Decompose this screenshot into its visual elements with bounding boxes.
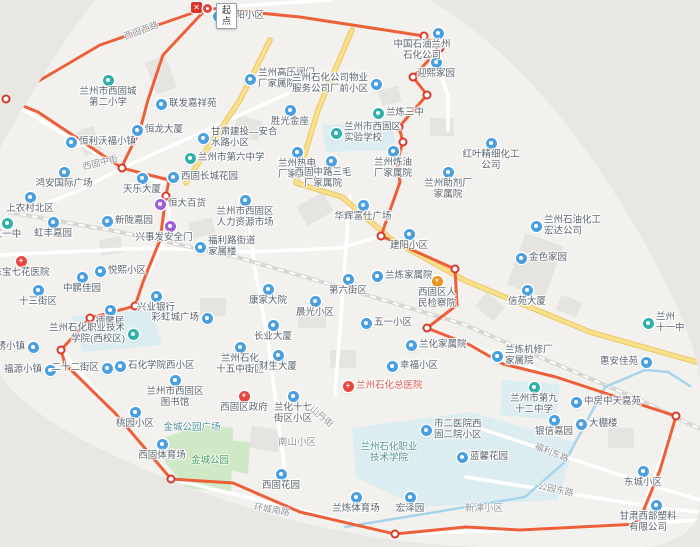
dot-icon: [361, 203, 365, 207]
dot-icon: [279, 472, 283, 476]
poi-label: 兰州石化公司物业服务公司厂前小区: [292, 74, 368, 95]
dot-icon: [354, 495, 358, 499]
poi-marker[interactable]: [105, 305, 116, 316]
poi-marker[interactable]: [388, 146, 399, 157]
poi-marker[interactable]: [292, 147, 303, 158]
poi-label: 大棚楼: [589, 419, 618, 430]
dot-icon: [108, 308, 112, 312]
dot-icon: [238, 345, 242, 349]
poi-label: 十三街区: [19, 297, 57, 308]
poi-label: 兰州市西固区图书馆: [146, 387, 203, 408]
poi-label: 甘肃西部塑料有限公司: [619, 512, 676, 533]
dot-icon: [188, 156, 192, 160]
dot-icon: [489, 141, 493, 145]
poi-label: 长业大厦: [254, 332, 292, 343]
dot-icon: [644, 360, 648, 364]
poi-label: 第六街区: [329, 286, 367, 297]
poi-label: 天乐大厦: [123, 185, 161, 196]
poi-marker[interactable]: [531, 221, 542, 232]
hospital-marker[interactable]: +: [16, 256, 27, 267]
area-label: 金城公园广场: [163, 423, 220, 434]
poi-marker[interactable]: [25, 192, 36, 203]
dot-icon: [243, 198, 247, 202]
poi-label: 虹丰嘉园: [34, 229, 72, 240]
dot-icon: [288, 108, 292, 112]
procuratorate-marker[interactable]: ★: [432, 276, 443, 287]
dot-icon: [28, 195, 32, 199]
poi-label: 兰州助剂厂家属院: [424, 179, 472, 200]
poi-label: 西固中路三毛厂家属院: [294, 168, 351, 189]
dot-icon: [158, 202, 162, 206]
poi-marker[interactable]: [326, 156, 337, 167]
poi-marker[interactable]: [351, 492, 362, 503]
poi-marker[interactable]: [95, 266, 106, 277]
road-name-label: 西固西路: [122, 18, 160, 43]
dot-icon: [131, 332, 135, 336]
school-marker[interactable]: [103, 75, 114, 86]
dot-icon: [198, 245, 202, 249]
area-label: 南山小区: [278, 438, 316, 449]
start-x-icon: ✕: [191, 2, 202, 13]
poi-label: 中国石油兰州石化公司: [393, 40, 450, 61]
poi-label: 惠安佳苑: [600, 357, 638, 368]
dot-icon: [69, 140, 73, 144]
shopping-marker[interactable]: [155, 199, 166, 210]
dot-icon: [460, 455, 464, 459]
poi-marker[interactable]: [235, 342, 246, 353]
dot-icon: [534, 224, 538, 228]
dot-icon: [5, 221, 9, 225]
poi-marker[interactable]: [387, 361, 398, 372]
poi-marker[interactable]: [276, 469, 287, 480]
dot-icon: [579, 422, 583, 426]
dot-icon: [276, 353, 280, 357]
poi-marker[interactable]: [48, 217, 59, 228]
poi-label: 福源小镇: [4, 365, 42, 376]
star-icon: ★: [241, 392, 246, 400]
school-marker[interactable]: [185, 153, 196, 164]
poi-label: 兴事发安全门: [135, 233, 192, 244]
poi-marker[interactable]: [33, 285, 44, 296]
poi-marker[interactable]: [638, 466, 649, 477]
poi-label: 中鹏佳园: [63, 284, 101, 295]
dot-icon: [295, 150, 299, 154]
dot-icon: [436, 31, 440, 35]
school-marker[interactable]: [2, 218, 13, 229]
poi-label: 兰州市西固区实验学校: [344, 123, 401, 144]
poi-label: 二十二街区: [51, 363, 99, 374]
dot-icon: [271, 323, 275, 327]
dot-icon: [391, 149, 395, 153]
dot-icon: [532, 385, 536, 389]
road-name-label: 山丹街: [307, 402, 336, 429]
poi-marker[interactable]: [457, 452, 468, 463]
poi-marker[interactable]: [405, 492, 416, 503]
poi-label: 恒大百货: [168, 199, 206, 210]
poi-label: 兰州市第九十二中学: [510, 394, 558, 415]
poi-marker[interactable]: [492, 351, 503, 362]
poi-label: 新陇嘉园: [115, 216, 153, 227]
poi-label: 兰州石化十五中街区: [216, 354, 264, 375]
poi-marker[interactable]: [651, 500, 662, 511]
poi-label: 兰化十七街区小区: [274, 403, 312, 424]
dot-icon: [168, 224, 172, 228]
poi-label: 兰州石化总医院: [356, 381, 423, 392]
poi-label: 晨光小区: [296, 308, 334, 319]
dot-icon: [329, 159, 333, 163]
poi-label: 兰州石油化工宏达公司: [544, 216, 601, 237]
poi-label: 西固长城花园: [181, 172, 238, 183]
poi-marker[interactable]: [202, 313, 213, 324]
dot-icon: [346, 277, 350, 281]
poi-marker[interactable]: [486, 138, 497, 149]
poi-label: 西固区人民检察院: [418, 288, 456, 309]
dot-icon: [424, 428, 428, 432]
poi-marker[interactable]: [285, 105, 296, 116]
dot-icon: [105, 366, 109, 370]
poi-marker[interactable]: [156, 99, 167, 110]
poi-label: 兰州石化职业技术学院(西校区): [49, 324, 125, 345]
road-name-label: 环城南路: [253, 499, 291, 518]
school-marker[interactable]: [331, 128, 342, 139]
poi-label: 恒利沃福小镇: [79, 137, 136, 148]
dot-icon: [390, 364, 394, 368]
poi-label: 恒龙大厦: [145, 125, 183, 136]
dot-icon: [376, 111, 380, 115]
school-marker[interactable]: [373, 108, 384, 119]
start-pin-icon: [203, 4, 212, 13]
poi-label: 兰炼体育场: [332, 504, 380, 515]
poi-label: 福利路街道家属楼: [208, 237, 256, 258]
dot-icon: [80, 275, 84, 279]
dot-icon: [375, 274, 379, 278]
dot-icon: [641, 469, 645, 473]
poi-label: 中房中天嘉苑: [584, 397, 641, 408]
road-name-label: 公园东路: [537, 479, 575, 499]
poi-label: 西固区政府: [220, 403, 268, 414]
dot-icon: [51, 220, 55, 224]
dot-icon: [135, 128, 139, 132]
poi-marker[interactable]: [371, 79, 382, 90]
dot-icon: [248, 77, 252, 81]
dot-icon: [364, 321, 368, 325]
school-marker[interactable]: [529, 382, 540, 393]
poi-label: 兰化家属院: [419, 340, 467, 351]
poi-label: 联发嘉祥苑: [169, 99, 217, 110]
dot-icon: [140, 176, 144, 180]
poi-label: 蓝馨花园: [470, 452, 508, 463]
dot-icon: [133, 410, 137, 414]
poi-marker[interactable]: [102, 363, 113, 374]
poi-label: 鸿安国际广场: [35, 179, 92, 190]
poi-marker[interactable]: [358, 200, 369, 211]
poi-label: 兰州炼油厂家属院: [374, 158, 412, 179]
poi-label: 康家大院: [249, 296, 287, 307]
poi-marker[interactable]: [361, 318, 372, 329]
hospital-marker[interactable]: +: [343, 381, 354, 392]
start-point-label[interactable]: 起点: [216, 3, 237, 29]
dot-icon: [98, 269, 102, 273]
dot-icon: [574, 400, 578, 404]
area-label: 新津小区: [465, 504, 503, 515]
poi-marker[interactable]: [343, 274, 354, 285]
poi-marker[interactable]: [130, 407, 141, 418]
poi-label: 市二医院西固二院小区: [434, 420, 482, 441]
poi-marker[interactable]: [132, 125, 143, 136]
poi-label: 金色家园: [529, 253, 567, 264]
poi-label: 甘肃建投—安合水路小区: [211, 128, 278, 149]
poi-label: 兰州十一中: [656, 313, 685, 334]
poi-label: 红叶精细化工公司: [462, 150, 519, 171]
poi-marker[interactable]: [157, 439, 168, 450]
poi-label: 宏泽园: [396, 504, 425, 515]
poi-marker[interactable]: [288, 391, 299, 402]
dot-icon: [446, 170, 450, 174]
poi-marker[interactable]: [421, 425, 432, 436]
area-label: 兰州石化职业技术学院: [360, 443, 417, 464]
dot-icon: [205, 316, 209, 320]
dot-icon: [291, 394, 295, 398]
poi-label: 兰州市西固城第二小学: [79, 87, 136, 108]
poi-marker[interactable]: [433, 28, 444, 39]
poi-marker[interactable]: [576, 419, 587, 430]
poi-label: 华辉富仕广场: [334, 212, 391, 223]
dot-icon: [654, 503, 658, 507]
poi-marker[interactable]: [59, 167, 70, 178]
poi-label: 西固体育场: [138, 451, 186, 462]
star-icon: ★: [434, 277, 439, 285]
road-name-label: 西固中街: [81, 151, 119, 172]
road-name-label: 福利东路: [533, 439, 571, 465]
poi-marker[interactable]: [443, 167, 454, 178]
dot-icon: [159, 102, 163, 106]
poi-marker[interactable]: [77, 272, 88, 283]
poi-label: 建阳小区: [390, 241, 428, 252]
dot-icon: [171, 175, 175, 179]
dot-icon: [36, 288, 40, 292]
poi-marker[interactable]: [198, 133, 209, 144]
poi-marker[interactable]: [516, 253, 527, 264]
map-viewport[interactable]: 朝阳小区迎熙家园兰州市西固城第二小学联发嘉祥苑兰州高压阀门厂家属院兰州石化公司物…: [0, 0, 700, 547]
poi-marker[interactable]: [522, 285, 533, 296]
dot-icon: [552, 418, 556, 422]
poi-marker[interactable]: [137, 173, 148, 184]
poi-label: 东宝七花医院: [0, 268, 50, 279]
poi-marker[interactable]: [268, 320, 279, 331]
dot-icon: [495, 354, 499, 358]
government-marker[interactable]: ★: [239, 391, 250, 402]
poi-marker[interactable]: [549, 415, 560, 426]
dot-icon: [106, 78, 110, 82]
poi-label: 银信嘉园: [535, 427, 573, 438]
poi-marker[interactable]: [641, 357, 652, 368]
poi-marker[interactable]: [404, 229, 415, 240]
dot-icon: [407, 232, 411, 236]
poi-marker[interactable]: [406, 340, 417, 351]
dot-icon: [334, 131, 338, 135]
poi-marker[interactable]: [273, 350, 284, 361]
dot-icon: [105, 219, 109, 223]
dot-icon: [646, 321, 650, 325]
poi-marker[interactable]: [310, 296, 321, 307]
dot-icon: [201, 136, 205, 140]
poi-marker[interactable]: [240, 195, 251, 206]
dot-icon: [154, 294, 158, 298]
poi-label: 悦熙小区: [108, 266, 146, 277]
shopping-marker[interactable]: [165, 221, 176, 232]
poi-label: 信苑大厦: [508, 297, 546, 308]
school-marker[interactable]: [643, 318, 654, 329]
area-label: 金城公园: [191, 456, 229, 467]
dot-icon: [173, 378, 177, 382]
dot-icon: [519, 256, 523, 260]
dot-icon: [31, 345, 35, 349]
poi-marker[interactable]: [170, 375, 181, 386]
dot-icon: [266, 287, 270, 291]
poi-label: 兰州市第六中学: [198, 153, 265, 164]
poi-label: 东城小区: [624, 478, 662, 489]
poi-label: 桃园小区: [116, 419, 154, 430]
poi-marker[interactable]: [372, 271, 383, 282]
poi-label: 虹一中: [0, 230, 21, 241]
dot-icon: [313, 299, 317, 303]
cross-icon: +: [346, 382, 351, 390]
dot-icon: [374, 82, 378, 86]
poi-marker[interactable]: [115, 361, 126, 372]
school-marker[interactable]: [128, 329, 139, 340]
poi-marker[interactable]: [102, 216, 113, 227]
poi-marker[interactable]: [168, 172, 179, 183]
poi-marker[interactable]: [195, 242, 206, 253]
poi-label: 兰州市西固区人力资源市场: [216, 207, 273, 228]
poi-label: 上农村北区: [6, 204, 54, 215]
dot-icon: [408, 495, 412, 499]
dot-icon: [62, 170, 66, 174]
poi-marker[interactable]: [151, 291, 162, 302]
poi-label: 财生大厦: [259, 362, 297, 373]
poi-label: 西固花园: [262, 481, 300, 492]
poi-marker[interactable]: [263, 284, 274, 295]
poi-label: 锦绣小镇: [0, 342, 25, 353]
poi-marker[interactable]: [28, 342, 39, 353]
poi-label: 迎熙家园: [417, 69, 455, 80]
dot-icon: [409, 343, 413, 347]
poi-layer: 朝阳小区迎熙家园兰州市西固城第二小学联发嘉祥苑兰州高压阀门厂家属院兰州石化公司物…: [0, 0, 700, 547]
dot-icon: [160, 442, 164, 446]
poi-label: 五一小区: [374, 318, 412, 329]
poi-label: 兰炼机修厂家属院: [505, 346, 553, 367]
poi-label: 石化学院西小区: [128, 361, 195, 372]
poi-marker[interactable]: [571, 397, 582, 408]
poi-label: 彩虹城广场: [151, 313, 199, 324]
dot-icon: [118, 364, 122, 368]
poi-marker[interactable]: [245, 74, 256, 85]
poi-label: 幸福小区: [400, 361, 438, 372]
cross-icon: +: [19, 257, 24, 265]
poi-label: 兰炼三中: [386, 108, 424, 119]
dot-icon: [525, 288, 529, 292]
poi-marker[interactable]: [66, 137, 77, 148]
poi-label: 兰炼家属院: [385, 271, 433, 282]
